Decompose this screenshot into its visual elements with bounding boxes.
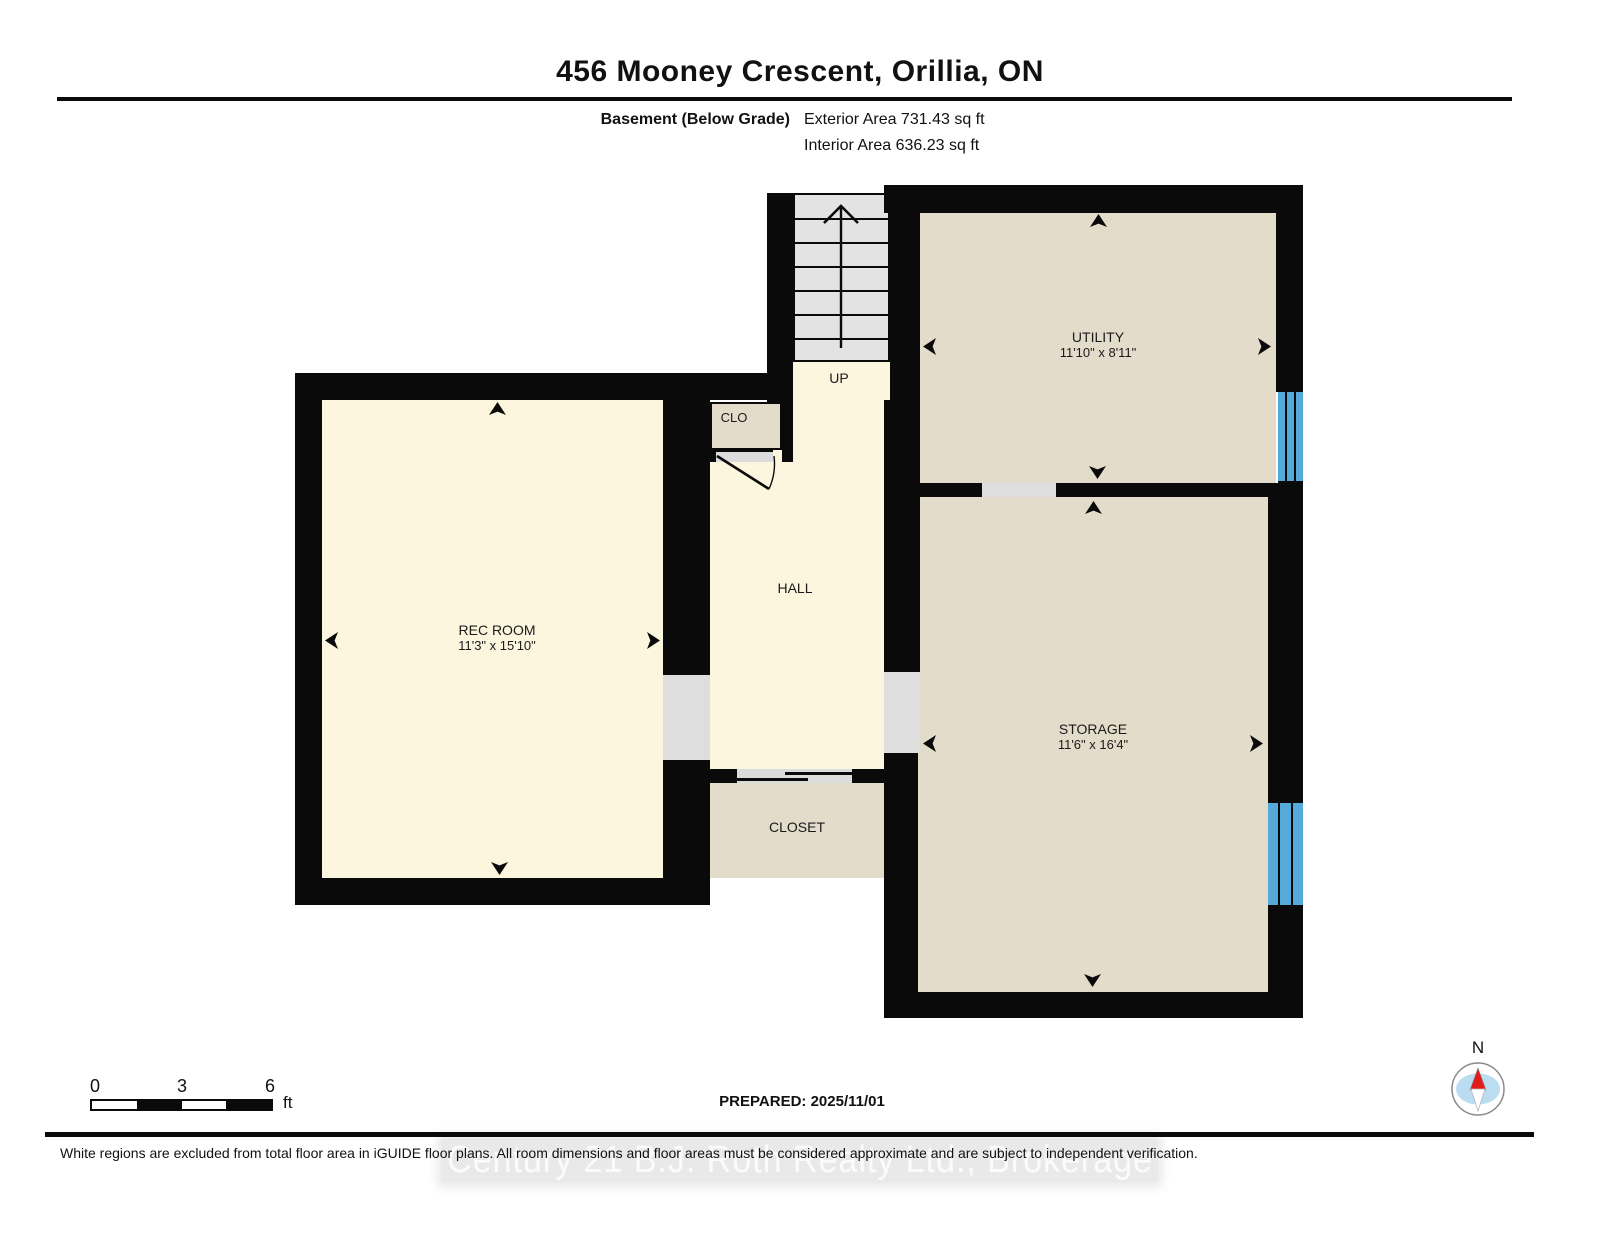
wall-segment: [663, 400, 710, 675]
room-name: UTILITY: [1060, 329, 1137, 345]
wall-segment: [884, 753, 918, 992]
room-dims: 11'3" x 15'10": [458, 638, 536, 654]
wall-segment: [884, 400, 920, 672]
stair-up-arrow: [793, 196, 890, 358]
sliding-door-panel: [737, 778, 808, 781]
scale-tick-0: 0: [90, 1076, 100, 1097]
label-clo: CLO: [721, 410, 748, 425]
floor-plan: REC ROOM 11'3" x 15'10" UTILITY 11'10" x…: [0, 0, 1600, 1237]
sliding-door-panel: [785, 772, 852, 775]
wall-segment: [884, 992, 1303, 1018]
window-storage: [1268, 801, 1303, 907]
sliding-door-jamb: [852, 769, 884, 783]
room-dims: 11'10" x 8'11": [1060, 345, 1137, 361]
label-hall: HALL: [777, 580, 812, 596]
wall-segment: [1276, 185, 1303, 392]
scale-tick-6: 6: [265, 1076, 275, 1097]
wall-segment: [295, 878, 710, 905]
window-utility: [1278, 390, 1303, 483]
wall-segment: [295, 373, 767, 400]
disclaimer-text: White regions are excluded from total fl…: [60, 1145, 1198, 1161]
label-closet: CLOSET: [769, 819, 825, 835]
room-dims: 11'6" x 16'4": [1058, 737, 1128, 753]
scale-tick-3: 3: [177, 1076, 187, 1097]
clo-door-swing: [710, 450, 794, 498]
wall-segment: [767, 193, 793, 402]
wall-segment: [890, 185, 920, 400]
room-name: STORAGE: [1058, 721, 1128, 737]
floorplan-page: { "header": { "title": "456 Mooney Cresc…: [0, 0, 1600, 1237]
wall-segment: [1268, 483, 1303, 803]
sliding-door-jamb: [710, 769, 737, 783]
door-opening-recroom-hall: [663, 675, 710, 760]
footer-divider: [45, 1132, 1534, 1137]
door-opening-utility-storage: [982, 483, 1056, 497]
wall-segment: [295, 373, 322, 905]
label-utility: UTILITY 11'10" x 8'11": [1060, 329, 1137, 361]
compass-icon: [1450, 1061, 1506, 1117]
wall-segment: [663, 760, 710, 878]
door-opening-hall-storage: [884, 672, 920, 753]
wall-segment: [884, 483, 1303, 497]
room-name: REC ROOM: [458, 622, 536, 638]
wall-segment: [884, 185, 1303, 213]
label-up: UP: [829, 370, 848, 386]
scale-unit: ft: [283, 1093, 292, 1113]
scale-bar: [90, 1099, 273, 1111]
label-storage: STORAGE 11'6" x 16'4": [1058, 721, 1128, 753]
label-rec-room: REC ROOM 11'3" x 15'10": [458, 622, 536, 654]
compass-north-label: N: [1472, 1038, 1484, 1058]
prepared-date: PREPARED: 2025/11/01: [719, 1093, 885, 1110]
